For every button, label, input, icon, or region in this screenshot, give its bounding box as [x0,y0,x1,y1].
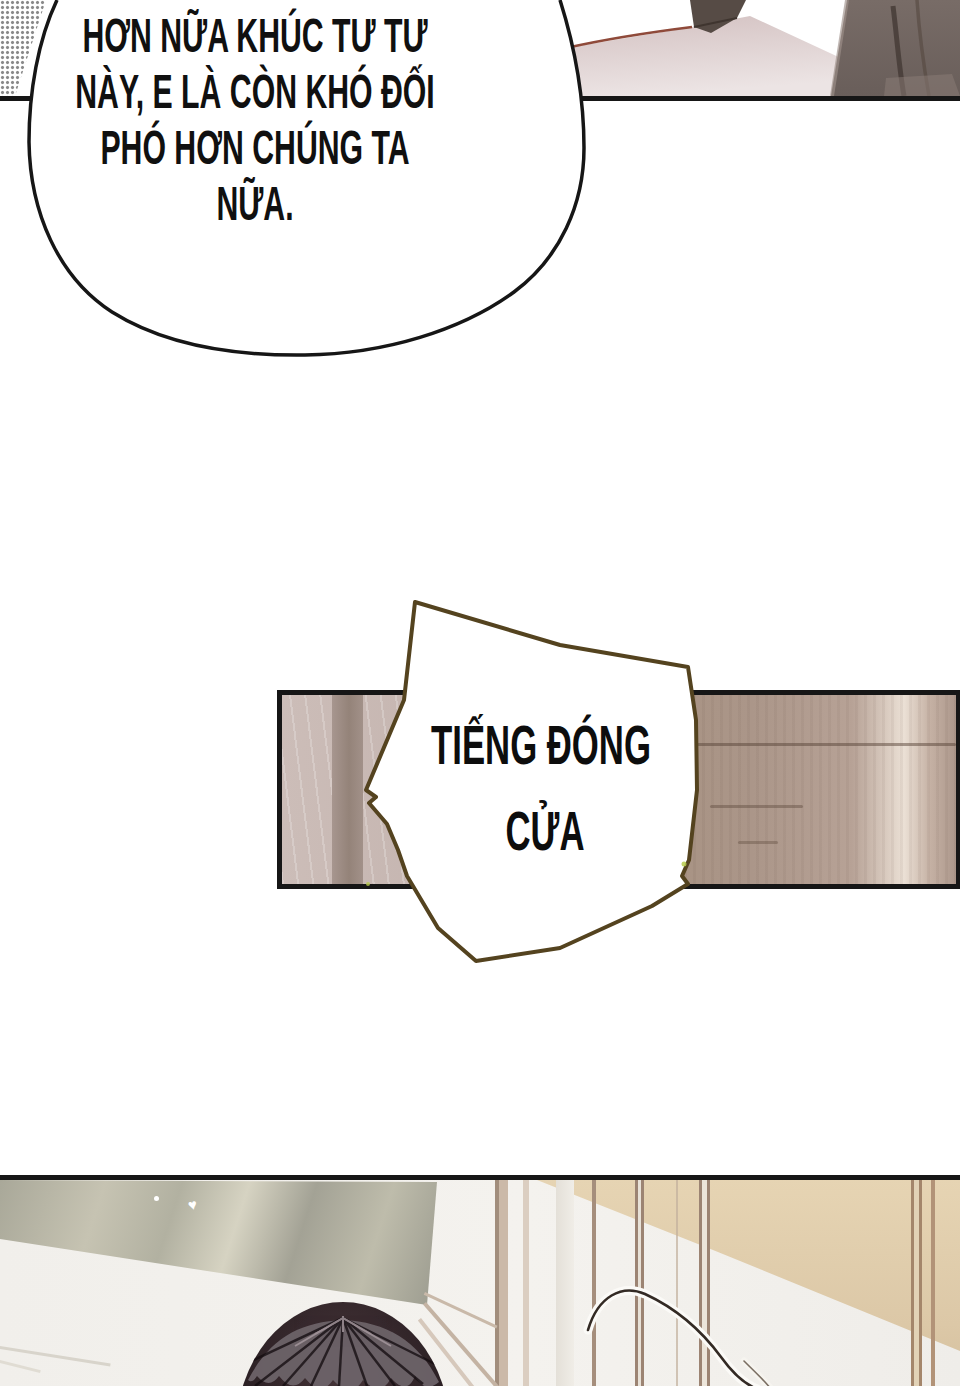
dialogue-line-1: HƠN NỮA KHÚC TƯ TƯ [75,8,435,64]
drawer-line [738,841,778,844]
green-speck [682,862,687,867]
drawer-line [710,805,803,808]
comic-page: HƠN NỮA KHÚC TƯ TƯ NÀY, E LÀ CÒN KHÓ ĐỐI… [0,0,960,1386]
dialogue-line-4: NỮA. [75,176,435,232]
sfx-text-line-2: CỬA [506,800,585,862]
dialogue-text: HƠN NỮA KHÚC TƯ TƯ NÀY, E LÀ CÒN KHÓ ĐỐI… [75,8,435,232]
sfx-bubble [340,580,710,975]
dialogue-line-3: PHÓ HƠN CHÚNG TA [75,120,435,176]
sfx-text-line-1: TIẾNG ĐÓNG [431,714,651,776]
bottom-panel: ♥ [0,1175,960,1386]
green-speck [366,882,370,886]
dialogue-line-2: NÀY, E LÀ CÒN KHÓ ĐỐI [75,64,435,120]
hanger-wire [0,1180,960,1386]
character-hair [225,1298,465,1386]
